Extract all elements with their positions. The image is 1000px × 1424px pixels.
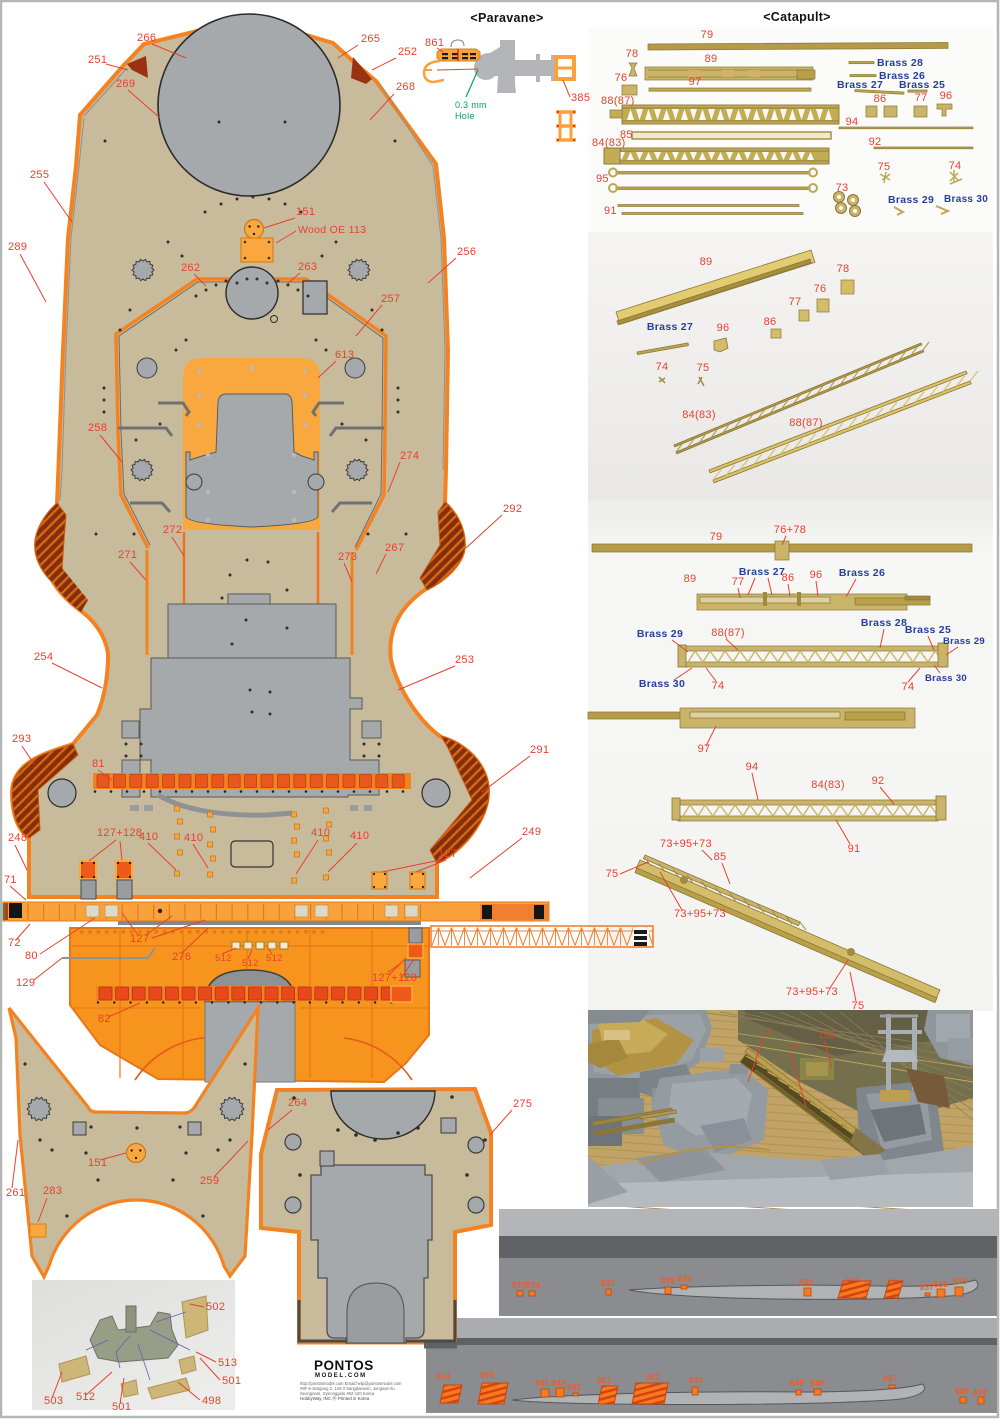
svg-text:841: 841 <box>535 1379 549 1388</box>
svg-text:512: 512 <box>242 958 259 969</box>
svg-text:385: 385 <box>571 92 590 104</box>
svg-text:293: 293 <box>12 733 31 745</box>
svg-text:Brass 25: Brass 25 <box>905 624 951 636</box>
svg-text:96: 96 <box>810 569 823 581</box>
svg-text:78: 78 <box>626 48 639 60</box>
svg-text:361: 361 <box>597 1376 611 1385</box>
svg-text:74: 74 <box>656 361 669 373</box>
svg-text:127+128: 127+128 <box>97 827 142 839</box>
svg-text:498: 498 <box>202 1395 221 1407</box>
svg-text:267: 267 <box>385 542 404 554</box>
svg-text:155: 155 <box>818 1030 836 1041</box>
svg-text:249: 249 <box>522 826 541 838</box>
svg-text:127: 127 <box>438 848 457 860</box>
svg-text:613: 613 <box>335 349 354 361</box>
svg-text:275: 275 <box>513 1098 532 1110</box>
svg-text:92: 92 <box>869 136 882 148</box>
svg-text:838: 838 <box>934 1280 948 1289</box>
svg-text:Brass 30: Brass 30 <box>944 194 988 205</box>
svg-text:Brass 30: Brass 30 <box>925 673 967 684</box>
svg-text:847: 847 <box>883 1374 897 1383</box>
svg-text:513: 513 <box>218 1357 237 1369</box>
svg-text:262: 262 <box>181 262 200 274</box>
svg-text:86: 86 <box>782 572 795 584</box>
svg-text:82: 82 <box>98 1013 111 1025</box>
svg-text:88(87): 88(87) <box>789 417 823 429</box>
svg-text:836: 836 <box>678 1274 692 1283</box>
svg-text:265: 265 <box>361 33 380 45</box>
svg-text:291: 291 <box>530 744 549 756</box>
svg-text:362: 362 <box>646 1373 660 1382</box>
svg-text:74: 74 <box>902 681 915 693</box>
svg-text:360: 360 <box>480 1371 494 1380</box>
svg-text:274: 274 <box>400 450 419 462</box>
svg-text:269: 269 <box>116 78 135 90</box>
svg-text:84(83): 84(83) <box>811 779 845 791</box>
svg-text:89: 89 <box>700 256 713 268</box>
svg-text:96: 96 <box>940 90 953 102</box>
svg-text:72: 72 <box>786 1042 798 1053</box>
svg-text:258: 258 <box>88 422 107 434</box>
svg-text:95: 95 <box>596 173 609 185</box>
svg-text:Brass 29: Brass 29 <box>943 636 985 647</box>
svg-text:272: 272 <box>163 524 182 536</box>
svg-text:264: 264 <box>288 1097 307 1109</box>
svg-text:271: 271 <box>118 549 137 561</box>
svg-text:289: 289 <box>8 241 27 253</box>
svg-text:74: 74 <box>712 680 725 692</box>
svg-text:251: 251 <box>88 54 107 66</box>
svg-text:845: 845 <box>790 1379 804 1388</box>
svg-text:Brass 27: Brass 27 <box>837 79 883 91</box>
svg-text:77: 77 <box>915 92 928 104</box>
svg-text:848: 848 <box>955 1387 969 1396</box>
svg-text:Hole: Hole <box>455 111 475 121</box>
svg-text:254: 254 <box>34 651 53 663</box>
svg-text:71: 71 <box>761 1028 773 1039</box>
svg-text:78: 78 <box>837 263 850 275</box>
svg-text:292: 292 <box>503 503 522 515</box>
svg-text:410: 410 <box>184 832 203 844</box>
svg-text:273: 273 <box>338 551 357 563</box>
svg-text:97: 97 <box>698 743 711 755</box>
svg-text:75: 75 <box>878 161 891 173</box>
svg-text:73: 73 <box>836 182 849 194</box>
svg-text:503: 503 <box>44 1395 63 1407</box>
svg-text:846: 846 <box>810 1379 824 1388</box>
svg-text:Brass 27: Brass 27 <box>647 321 693 333</box>
svg-text:92: 92 <box>872 775 885 787</box>
svg-text:71: 71 <box>4 874 17 886</box>
svg-text:252: 252 <box>398 46 417 58</box>
svg-text:76+78: 76+78 <box>774 524 806 536</box>
svg-text:72: 72 <box>8 937 21 949</box>
svg-text:94: 94 <box>846 116 859 128</box>
svg-text:84(83): 84(83) <box>592 137 626 149</box>
svg-text:HobbyWay, INC Ⓡ Printed in: HobbyWay, INC Ⓡ Printed in Korea <box>300 1395 370 1402</box>
svg-text:833: 833 <box>512 1281 526 1290</box>
svg-text:88(87): 88(87) <box>601 95 635 107</box>
svg-text:91: 91 <box>848 843 861 855</box>
svg-text:84(83): 84(83) <box>682 409 716 421</box>
svg-text:261: 261 <box>6 1187 25 1199</box>
svg-text:Brass 28: Brass 28 <box>861 617 907 629</box>
svg-text:Brass 27: Brass 27 <box>739 566 785 578</box>
svg-text:253: 253 <box>455 654 474 666</box>
svg-text:73+95+73: 73+95+73 <box>660 838 712 850</box>
svg-text:266: 266 <box>137 32 156 44</box>
svg-text:842: 842 <box>552 1379 566 1388</box>
svg-text:PONTOS: PONTOS <box>314 1358 374 1373</box>
svg-text:502: 502 <box>206 1301 225 1313</box>
svg-text:256: 256 <box>457 246 476 258</box>
svg-text:96: 96 <box>717 322 730 334</box>
svg-text:835: 835 <box>661 1277 675 1286</box>
svg-text:501: 501 <box>112 1401 131 1413</box>
svg-text:89: 89 <box>684 573 697 585</box>
svg-text:410: 410 <box>311 827 330 839</box>
svg-text:410: 410 <box>139 831 158 843</box>
svg-text:Brass 29: Brass 29 <box>888 194 934 206</box>
svg-text:151: 151 <box>296 206 315 218</box>
svg-text:276: 276 <box>172 951 191 963</box>
svg-text:<Paravane>: <Paravane> <box>470 11 543 25</box>
svg-text:512: 512 <box>76 1391 95 1403</box>
svg-text:849: 849 <box>973 1388 987 1397</box>
svg-text:248: 248 <box>8 832 27 844</box>
svg-text:255: 255 <box>30 169 49 181</box>
svg-text:76: 76 <box>814 283 827 295</box>
svg-text:834: 834 <box>526 1281 540 1290</box>
svg-text:Wood OE 113: Wood OE 113 <box>298 224 366 236</box>
svg-text:79: 79 <box>710 531 723 543</box>
svg-text:283: 283 <box>43 1185 62 1197</box>
svg-text:81: 81 <box>92 758 105 770</box>
svg-text:410: 410 <box>350 830 369 842</box>
svg-text:MODEL.COM: MODEL.COM <box>315 1373 367 1379</box>
svg-text:76: 76 <box>615 72 628 84</box>
svg-text:501: 501 <box>222 1375 241 1387</box>
svg-text:Brass 30: Brass 30 <box>639 678 685 690</box>
svg-text:844: 844 <box>689 1376 703 1385</box>
svg-text:832: 832 <box>799 1278 813 1287</box>
svg-text:77: 77 <box>789 296 802 308</box>
svg-text:259: 259 <box>200 1175 219 1187</box>
svg-text:86: 86 <box>874 93 887 105</box>
svg-text:839: 839 <box>953 1277 967 1286</box>
svg-text:0.3 mm: 0.3 mm <box>455 100 487 110</box>
svg-text:<Catapult>: <Catapult> <box>763 10 831 24</box>
svg-text:79: 79 <box>701 29 714 41</box>
svg-text:74: 74 <box>949 160 962 172</box>
svg-text:75: 75 <box>606 868 619 880</box>
svg-text:97: 97 <box>689 76 702 88</box>
svg-text:843: 843 <box>567 1383 581 1392</box>
svg-text:94: 94 <box>746 761 759 773</box>
svg-text:Brass 29: Brass 29 <box>637 628 683 640</box>
svg-text:861: 861 <box>425 37 444 49</box>
svg-text:91: 91 <box>604 205 617 217</box>
svg-text:512: 512 <box>266 953 283 964</box>
svg-text:88(87): 88(87) <box>711 627 745 639</box>
svg-text:837: 837 <box>920 1283 934 1292</box>
svg-text:127+128: 127+128 <box>372 972 417 984</box>
svg-text:Brass 26: Brass 26 <box>839 567 885 579</box>
svg-text:359: 359 <box>436 1372 450 1381</box>
svg-text:268: 268 <box>396 81 415 93</box>
svg-text:257: 257 <box>381 293 400 305</box>
svg-text:80: 80 <box>25 950 38 962</box>
svg-text:Brass 28: Brass 28 <box>877 57 923 69</box>
svg-text:512: 512 <box>215 953 232 964</box>
svg-text:86: 86 <box>764 316 777 328</box>
svg-text:75: 75 <box>697 362 710 374</box>
svg-text:89: 89 <box>705 53 718 65</box>
svg-text:129: 129 <box>16 977 35 989</box>
svg-text:831: 831 <box>601 1279 615 1288</box>
svg-text:263: 263 <box>298 261 317 273</box>
svg-text:85: 85 <box>714 851 727 863</box>
svg-text:Brass 25: Brass 25 <box>899 79 945 91</box>
